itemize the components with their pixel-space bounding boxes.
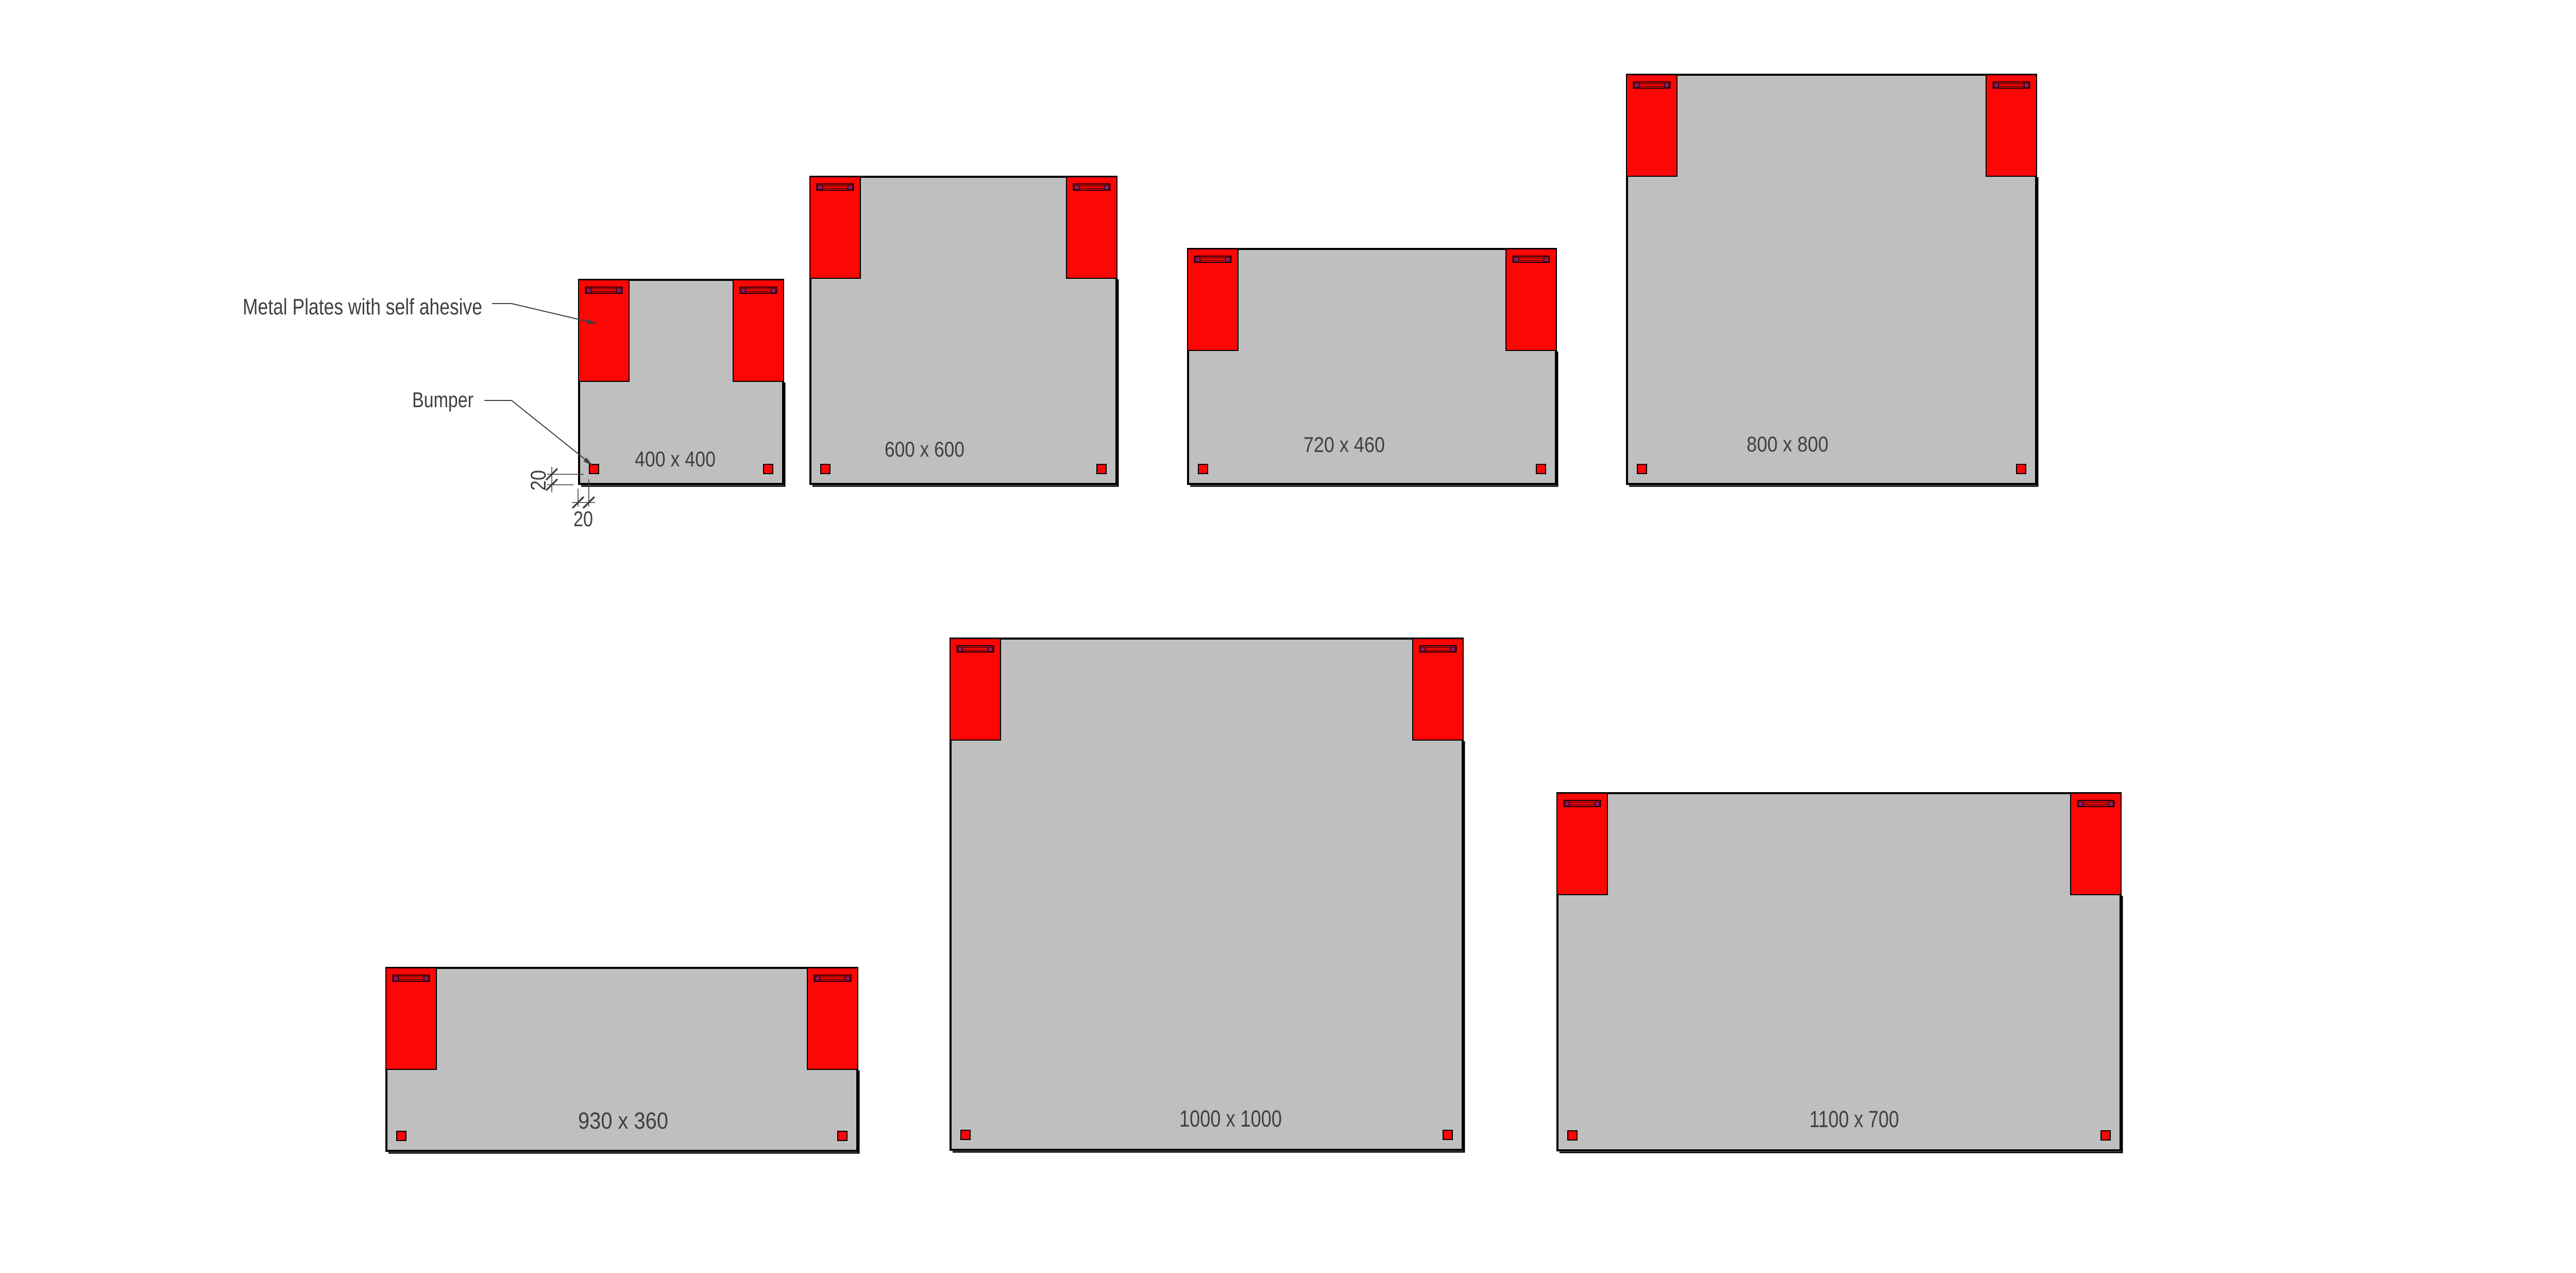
- svg-text:20: 20: [526, 470, 550, 491]
- svg-text:930 x 360: 930 x 360: [578, 1108, 668, 1134]
- svg-text:1000 x 1000: 1000 x 1000: [1179, 1105, 1282, 1132]
- svg-text:720 x 460: 720 x 460: [1303, 432, 1385, 457]
- svg-text:20: 20: [573, 507, 593, 531]
- svg-text:Metal Plates with self ahesive: Metal Plates with self ahesive: [243, 294, 482, 320]
- svg-text:800 x 800: 800 x 800: [1747, 432, 1828, 456]
- svg-text:1100 x 700: 1100 x 700: [1809, 1106, 1899, 1132]
- svg-text:400 x 400: 400 x 400: [635, 447, 716, 471]
- svg-text:Bumper: Bumper: [412, 388, 473, 412]
- svg-text:600 x 600: 600 x 600: [885, 437, 964, 461]
